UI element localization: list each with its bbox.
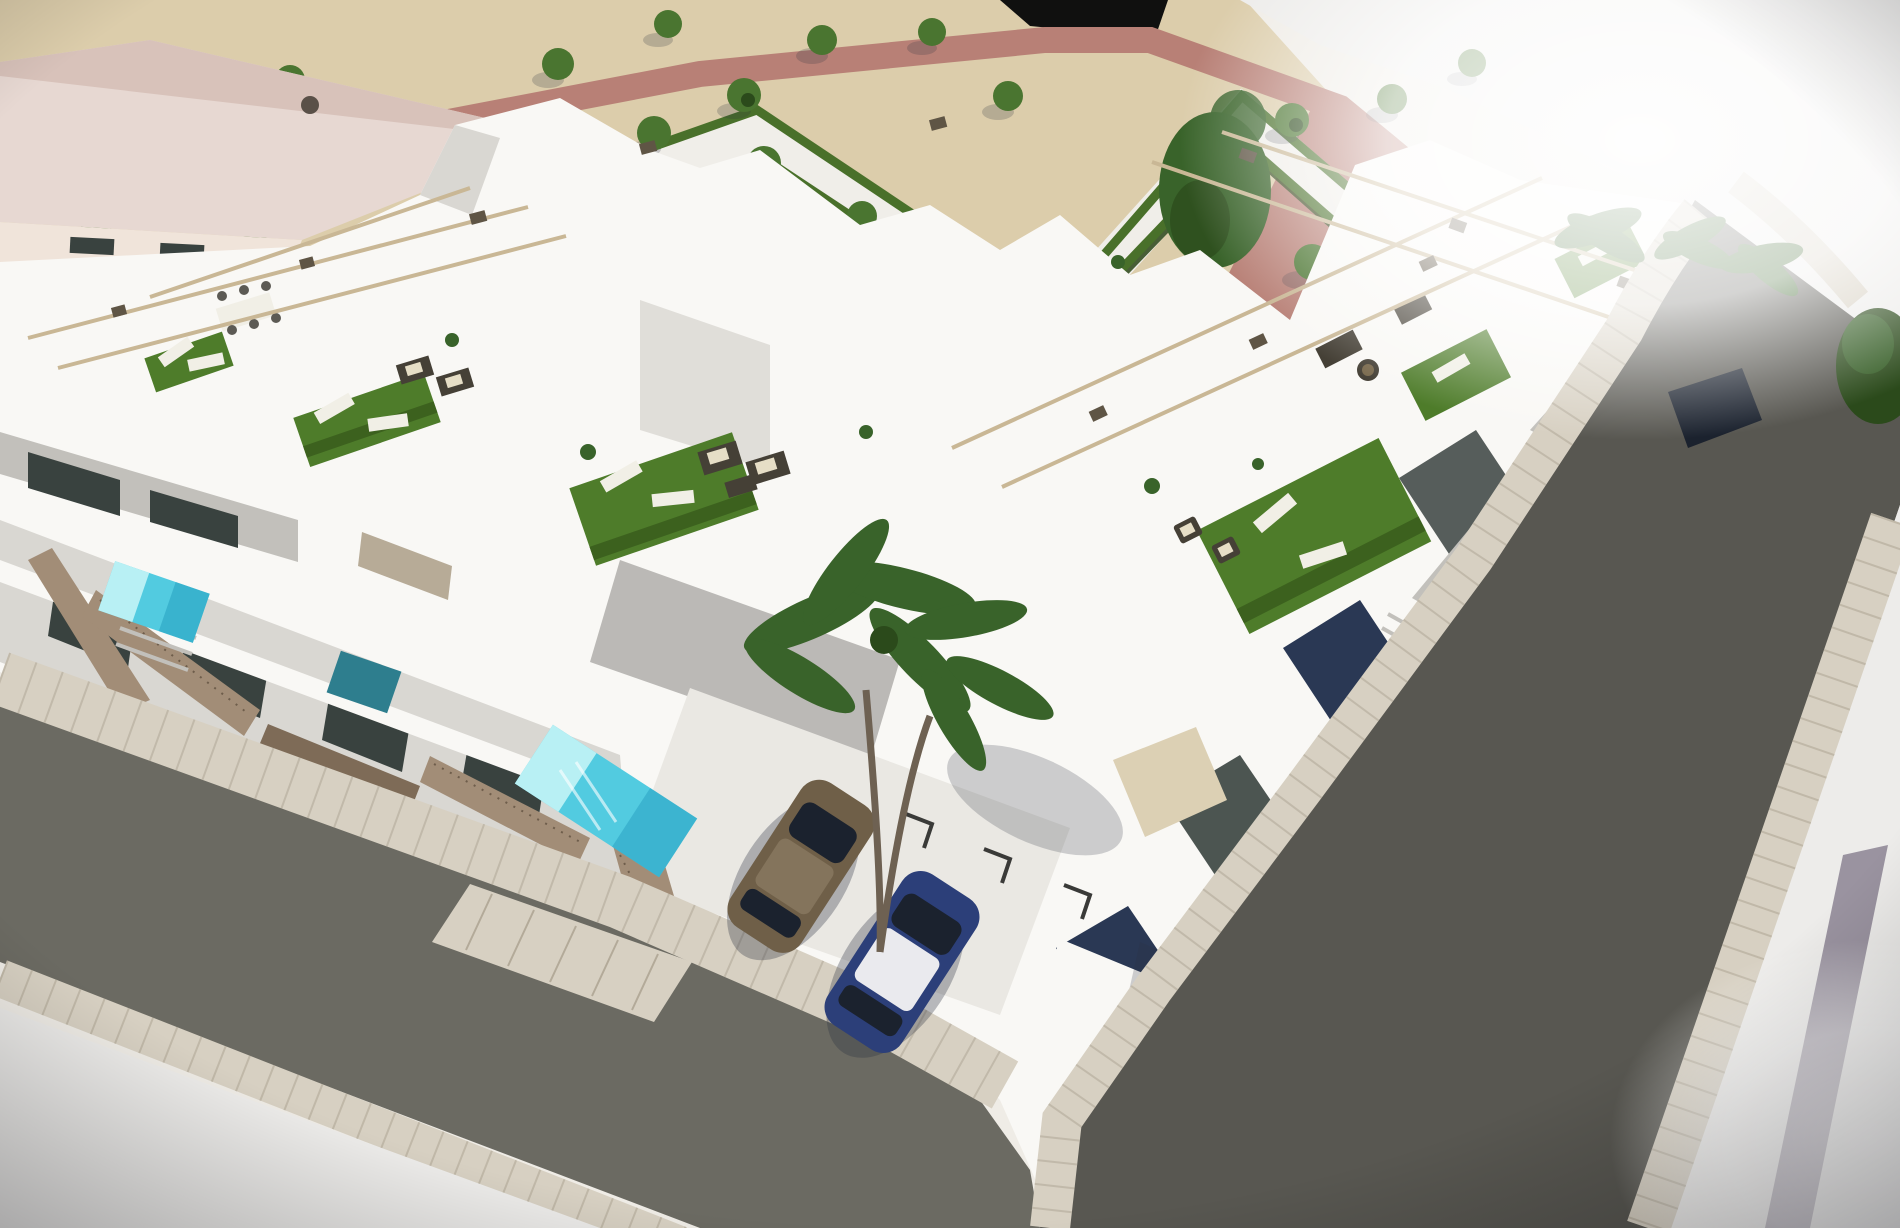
scene-svg [0,0,1900,1228]
vignette [0,0,1900,1228]
lighting-overlays [0,0,1900,1228]
render-canvas [0,0,1900,1228]
